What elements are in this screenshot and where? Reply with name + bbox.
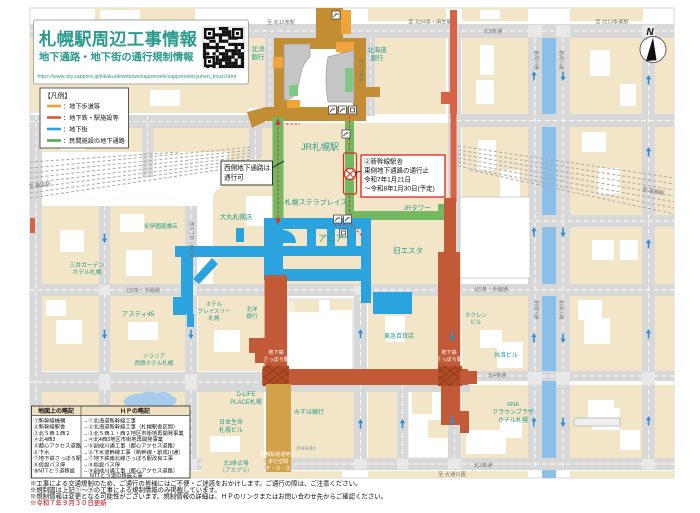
- svg-text:アピア: アピア: [318, 233, 344, 243]
- svg-text:JRタワー: JRタワー: [403, 203, 430, 212]
- svg-text:クラウンプラザ: クラウンプラザ: [492, 408, 534, 416]
- svg-text:日本生命: 日本生命: [219, 418, 243, 426]
- svg-text:北4条通: 北4条通: [488, 371, 507, 379]
- svg-text:：民間施設の地下通路: ：民間施設の地下通路: [63, 137, 126, 145]
- svg-text:→②北海道新幹線工事（札幌駅舎区間）: →②北海道新幹線工事（札幌駅舎区間）: [83, 423, 178, 431]
- svg-text:札幌ビル: 札幌ビル: [219, 426, 243, 434]
- svg-text:→①北海道新幹線工事: →①北海道新幹線工事: [83, 416, 137, 424]
- svg-text:旧エスタ: 旧エスタ: [393, 246, 423, 255]
- svg-text:北5条・手稲通: 北5条・手稲通: [474, 285, 509, 293]
- svg-text:⑦地下鉄さっぽろ駅: ⑦地下鉄さっぽろ駅: [34, 454, 82, 462]
- svg-text:NTTとう道の移設工事: NTTとう道の移設工事: [90, 471, 143, 479]
- svg-text:創成川通: 創成川通: [533, 50, 540, 69]
- svg-text:JR札幌駅: JR札幌駅: [301, 141, 339, 152]
- svg-text:地図上の略記: 地図上の略記: [38, 407, 74, 415]
- svg-text:至 北13条東駅: 至 北13条東駅: [595, 18, 629, 26]
- svg-text:：地下歩道等: ：地下歩道等: [63, 103, 100, 111]
- svg-text:：地下街: ：地下街: [63, 126, 88, 134]
- svg-text:【凡例】: 【凡例】: [44, 91, 71, 100]
- svg-text:ソラリア: ソラリア: [143, 353, 166, 360]
- svg-text:三井ガーデン: 三井ガーデン: [70, 261, 105, 269]
- svg-text:さっぽろ駅: さっぽろ駅: [263, 355, 290, 363]
- svg-text:北3条通: 北3条通: [474, 461, 493, 469]
- svg-text:③北５西１西２: ③北５西１西２: [34, 429, 71, 437]
- svg-text:アスティ45: アスティ45: [122, 310, 155, 318]
- svg-text:札幌ステラプレイス: 札幌ステラプレイス: [285, 198, 348, 207]
- svg-text:ＨＰの略記: ＨＰの略記: [120, 407, 150, 415]
- svg-text:：地下鉄・駅施設等: ：地下鉄・駅施設等: [63, 114, 119, 122]
- svg-text:①新幹線機構: ①新幹線機構: [34, 416, 66, 424]
- svg-text:至 北34条・麻生駅: 至 北34条・麻生駅: [408, 18, 452, 26]
- svg-text:銀行: 銀行: [371, 53, 385, 62]
- svg-text:札幌: 札幌: [208, 314, 220, 322]
- svg-text:→⑧仮設バス停: →⑧仮設バス停: [83, 460, 121, 468]
- svg-text:銀行: 銀行: [252, 52, 266, 61]
- svg-text:北洋: 北洋: [252, 44, 266, 53]
- svg-text:ホテル札幌: ホテル札幌: [498, 416, 528, 424]
- svg-text:北海道: 北海道: [367, 45, 387, 54]
- svg-text:東側地下通路の通行止: 東側地下通路の通行止: [364, 166, 430, 175]
- svg-text:みずほ銀行: みずほ銀行: [294, 408, 324, 416]
- svg-text:地下鉄: 地下鉄: [441, 348, 457, 356]
- svg-text:札幌駅周辺工事情報: 札幌駅周辺工事情報: [38, 29, 198, 49]
- svg-text:北3条広場: 北3条広場: [223, 459, 249, 467]
- svg-text:ホテル札幌: ホテル札幌: [73, 268, 102, 276]
- svg-text:通行可: 通行可: [224, 173, 244, 182]
- svg-text:⑨NTTとう道移設: ⑨NTTとう道移設: [34, 467, 76, 475]
- svg-text:※令和７年９月３０日更新: ※令和７年９月３０日更新: [30, 498, 107, 507]
- svg-text:札幌駅前通: 札幌駅前通: [288, 301, 295, 326]
- svg-text:→⑦地下鉄南北線さっぽろ駅改良工事: →⑦地下鉄南北線さっぽろ駅改良工事: [83, 454, 174, 462]
- svg-text:令和7年1月21日: 令和7年1月21日: [364, 175, 411, 184]
- svg-text:北5条・手稲通: 北5条・手稲通: [126, 286, 161, 294]
- svg-text:→⑥下水道幹線工事（新幹線・創成川通）: →⑥下水道幹線工事（新幹線・創成川通）: [83, 448, 184, 456]
- svg-text:→⑤創成川通工事（都心アクセス道路）: →⑤創成川通工事（都心アクセス道路）: [83, 442, 178, 450]
- svg-text:⑥下水: ⑥下水: [34, 448, 51, 456]
- svg-text:D-LIFE: D-LIFE: [236, 392, 255, 398]
- svg-text:～令和8年1月30日(予定): ～令和8年1月30日(予定): [364, 184, 435, 193]
- svg-text:西側地下通路は: 西側地下通路は: [224, 163, 271, 172]
- svg-text:②新幹線駅舎: ②新幹線駅舎: [364, 157, 404, 166]
- svg-text:西鉄ホテル札幌: 西鉄ホテル札幌: [135, 359, 174, 367]
- svg-text:④北4西3: ④北4西3: [34, 435, 56, 443]
- svg-text:創成川通: 創成川通: [558, 300, 565, 319]
- svg-text:北8条通: 北8条通: [484, 27, 503, 35]
- svg-text:チ・カ・ホ: チ・カ・ホ: [265, 466, 290, 472]
- svg-text:（アカプラ）: （アカプラ）: [219, 467, 252, 474]
- svg-text:→④北4西3地区市街地再開発事業: →④北4西3地区市街地再開発事業: [83, 435, 164, 443]
- svg-text:N: N: [646, 27, 654, 38]
- svg-text:北洋: 北洋: [246, 305, 258, 313]
- svg-text:創成川通: 創成川通: [558, 50, 565, 69]
- svg-text:銀行: 銀行: [246, 312, 258, 320]
- svg-text:→③北５西１・西２地区市街地再開発事業: →③北５西１・西２地区市街地再開発事業: [83, 429, 184, 437]
- svg-text:⑤都心アクセス道路: ⑤都心アクセス道路: [34, 442, 82, 450]
- svg-text:東急百貨店: 東急百貨店: [384, 332, 414, 340]
- svg-text:https://www.city.sapporo.jp/ki: https://www.city.sapporo.jp/kikaku/downt…: [38, 74, 237, 80]
- svg-text:地下通路・地下街の通行規制情報: 地下通路・地下街の通行規制情報: [39, 51, 194, 64]
- svg-text:西５丁目・樽川通: 西５丁目・樽川通: [188, 222, 195, 259]
- svg-text:ホクレン: ホクレン: [465, 312, 488, 319]
- svg-text:共済ビル: 共済ビル: [494, 351, 518, 359]
- svg-text:ANA: ANA: [507, 402, 519, 408]
- svg-text:⑧仮設バス停: ⑧仮設バス停: [34, 460, 66, 468]
- svg-text:札幌駅前通地下: 札幌駅前通地下: [260, 451, 295, 458]
- svg-text:さっぽろ駅: さっぽろ駅: [436, 355, 463, 363]
- svg-text:ホテル: ホテル: [206, 301, 223, 308]
- svg-text:大丸札幌店: 大丸札幌店: [220, 212, 253, 221]
- svg-text:至 大通公園: 至 大通公園: [438, 470, 465, 478]
- svg-text:グレイスリー: グレイスリー: [198, 307, 231, 315]
- svg-text:西２丁目通: 西２丁目通: [358, 59, 365, 82]
- svg-text:紀伊國屋書店: 紀伊國屋書店: [144, 222, 178, 230]
- svg-text:創成川通: 創成川通: [533, 300, 540, 319]
- svg-text:②新幹線駅舎: ②新幹線駅舎: [34, 423, 66, 431]
- svg-text:至 北12条駅: 至 北12条駅: [267, 18, 296, 26]
- svg-text:地下鉄: 地下鉄: [268, 348, 284, 356]
- svg-text:miredo: miredo: [296, 445, 316, 452]
- svg-text:ビル: ビル: [470, 318, 482, 326]
- svg-text:歩行空間: 歩行空間: [268, 458, 288, 465]
- svg-text:PLACE札幌: PLACE札幌: [230, 398, 262, 406]
